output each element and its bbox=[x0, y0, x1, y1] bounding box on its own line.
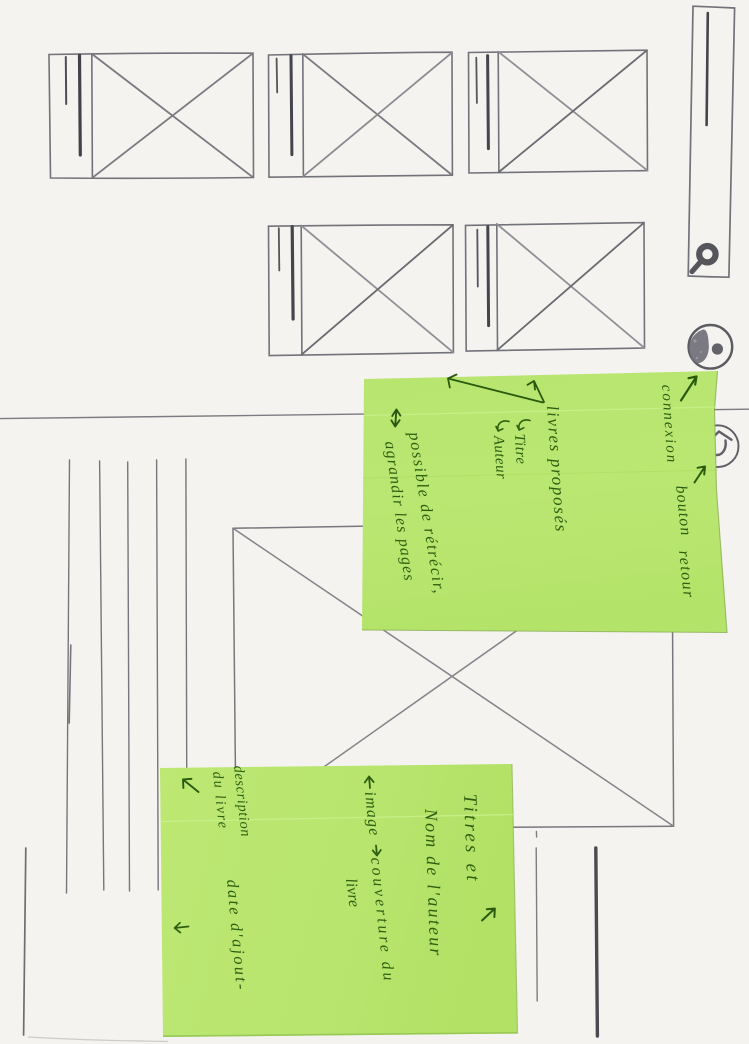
svg-text:Titres et: Titres et bbox=[459, 793, 483, 884]
svg-text:Auteur: Auteur bbox=[490, 434, 509, 480]
svg-text:livre: livre bbox=[342, 877, 362, 908]
svg-text:Titre: Titre bbox=[511, 433, 529, 465]
